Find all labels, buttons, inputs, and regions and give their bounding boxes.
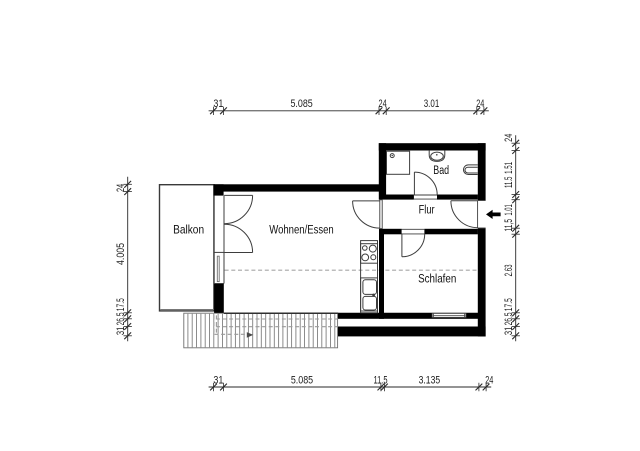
svg-text:17.5: 17.5 [503,298,515,311]
svg-text:31: 31 [503,327,515,336]
svg-text:5.085: 5.085 [291,374,313,386]
svg-text:24: 24 [476,98,484,110]
svg-text:2.63: 2.63 [503,264,515,276]
svg-text:Bad: Bad [433,165,449,177]
svg-text:Flur: Flur [419,204,435,216]
svg-text:3.01: 3.01 [424,98,440,110]
svg-text:24: 24 [379,98,387,110]
svg-text:1.51: 1.51 [503,162,515,174]
svg-text:Wohnen/Essen: Wohnen/Essen [269,222,334,236]
svg-text:24: 24 [115,184,127,192]
svg-text:5.085: 5.085 [290,98,312,110]
svg-text:17.5: 17.5 [115,298,127,311]
svg-text:Schlafen: Schlafen [418,271,456,285]
svg-text:Balkon: Balkon [173,222,204,236]
svg-text:1.01: 1.01 [503,204,515,216]
svg-text:24: 24 [485,374,493,386]
svg-text:11.5: 11.5 [374,374,388,386]
svg-text:11.5: 11.5 [503,177,515,189]
svg-text:31: 31 [115,327,127,336]
svg-text:24: 24 [503,134,515,142]
svg-text:11,5: 11,5 [503,219,515,232]
svg-text:31: 31 [213,98,223,110]
svg-text:26.5: 26.5 [503,312,515,325]
svg-text:3.135: 3.135 [419,374,441,386]
svg-text:31: 31 [213,374,223,386]
svg-text:26.5: 26.5 [115,312,127,325]
svg-text:4.005: 4.005 [115,243,127,265]
